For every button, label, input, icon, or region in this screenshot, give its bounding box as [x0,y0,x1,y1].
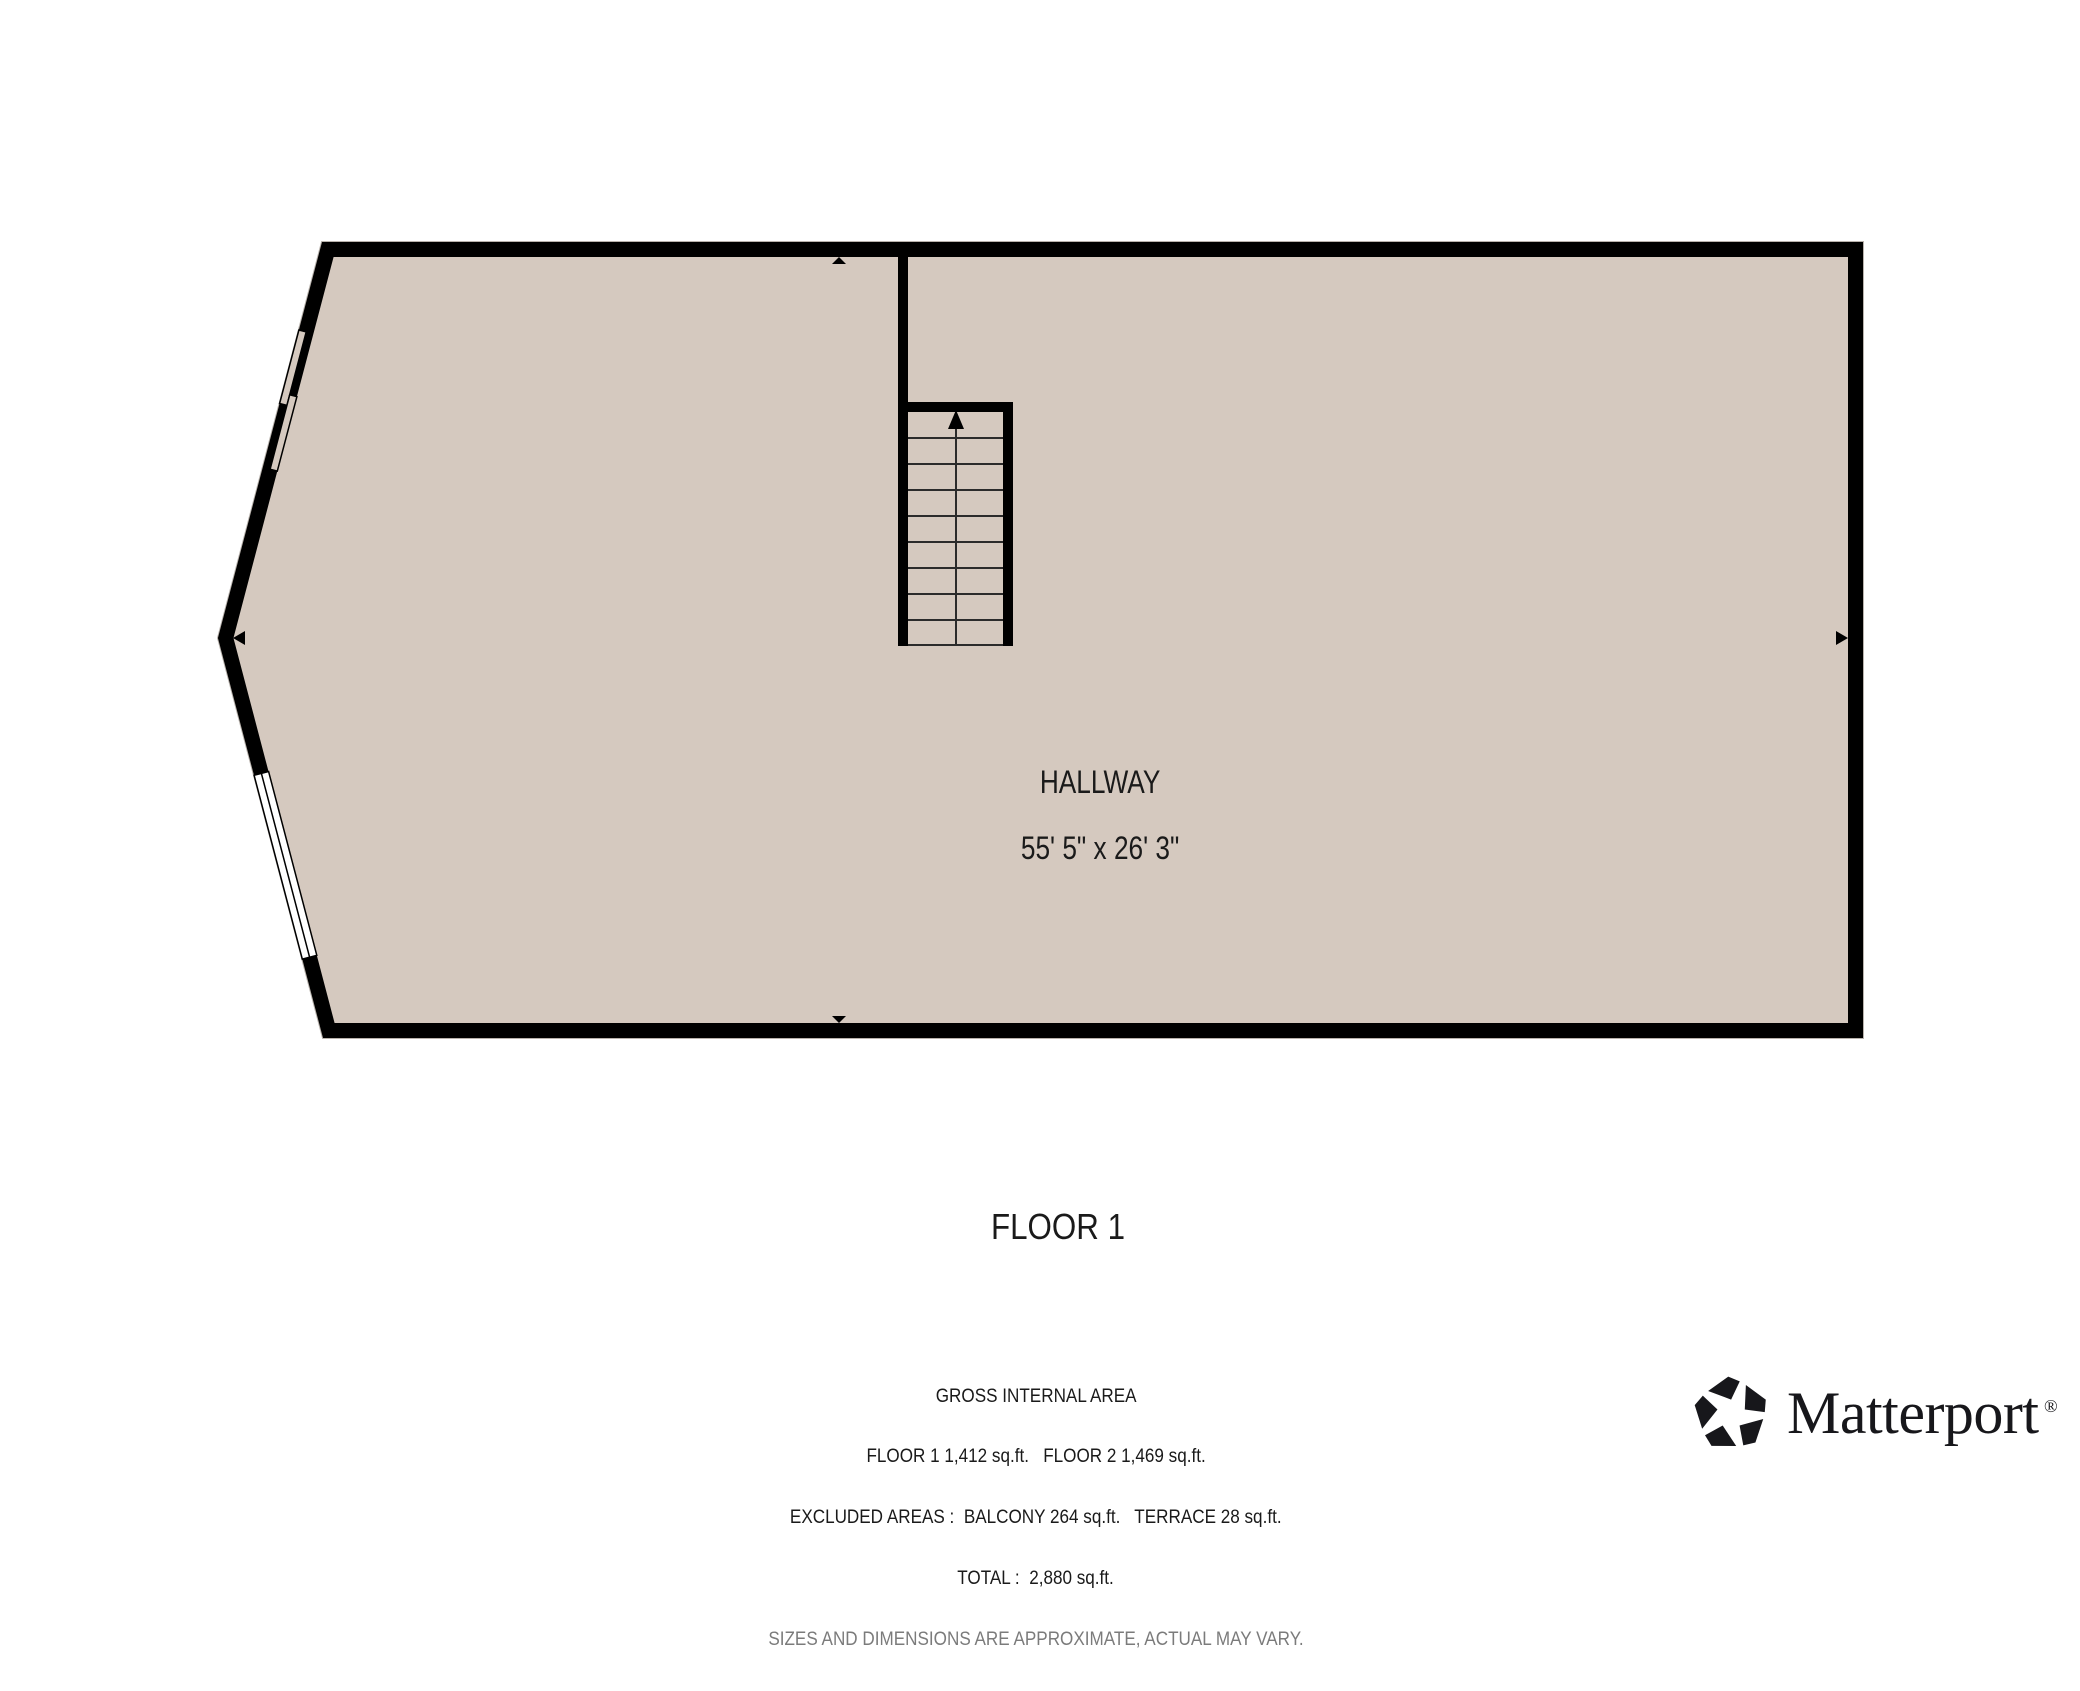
room-dimensions: 55' 5" x 26' 3" [1020,830,1178,866]
area-summary: GROSS INTERNAL AREA FLOOR 1 1,412 sq.ft.… [739,1346,1334,1691]
room-name: HALLWAY [1039,764,1160,800]
floor-title: FLOOR 1 [941,1170,1135,1284]
stair-right-wall [1003,402,1013,646]
matterport-logo-icon [1686,1367,1782,1458]
divider-wall [898,248,908,646]
matterport-wordmark: Matterport [1787,1383,2039,1443]
stair-top-wall [898,402,1013,412]
room-label-block: HALLWAY 55' 5" x 26' 3" [919,700,1201,931]
total-area-line: TOTAL : 2,880 sq.ft. [739,1569,1334,1589]
gross-internal-area-line: GROSS INTERNAL AREA [739,1387,1334,1407]
floorplan-page: HALLWAY 55' 5" x 26' 3" FLOOR 1 GROSS IN… [0,0,2080,1470]
registered-trademark-icon: ® [2044,1396,2058,1417]
floor-areas-line: FLOOR 1 1,412 sq.ft. FLOOR 2 1,469 sq.ft… [739,1447,1334,1467]
excluded-areas-line: EXCLUDED AREAS : BALCONY 264 sq.ft. TERR… [739,1508,1334,1528]
disclaimer-line: SIZES AND DIMENSIONS ARE APPROXIMATE, AC… [739,1630,1334,1650]
